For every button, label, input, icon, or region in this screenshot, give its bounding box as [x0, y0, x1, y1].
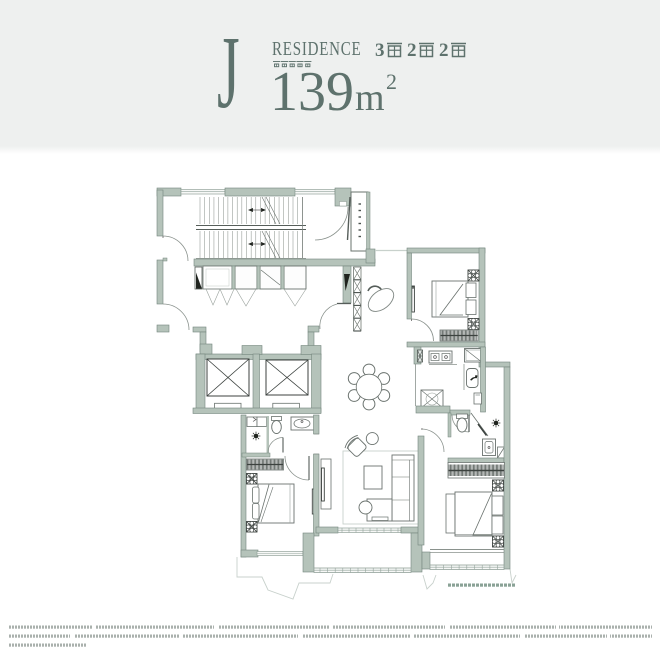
svg-text:2: 2 [407, 40, 417, 61]
svg-text:2: 2 [386, 69, 397, 94]
svg-text:3: 3 [375, 40, 385, 61]
svg-text:RESIDENCE: RESIDENCE [272, 37, 361, 59]
svg-text:m: m [355, 77, 385, 119]
svg-text:2: 2 [439, 40, 449, 61]
svg-text:139: 139 [270, 61, 354, 123]
svg-text:J: J [217, 16, 240, 131]
